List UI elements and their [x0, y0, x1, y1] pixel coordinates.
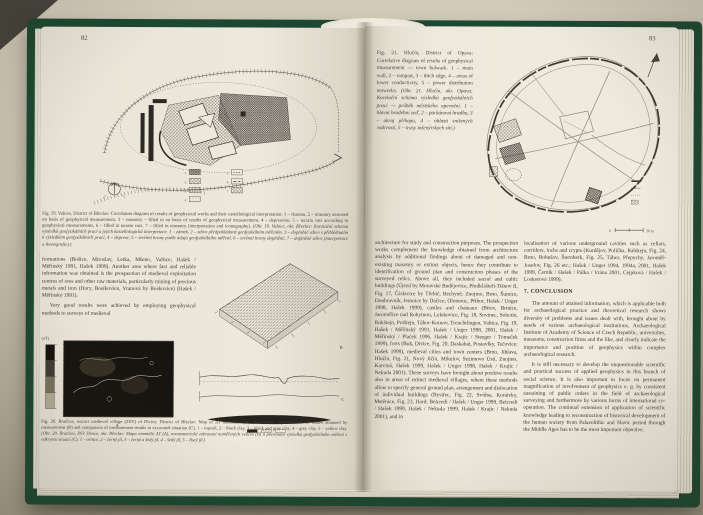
svg-text:7: 7	[227, 189, 229, 193]
scale-bar: 0 50 m	[609, 228, 654, 233]
fig20-caption: Fig. 20. Bratčice, extinct medieval vill…	[41, 419, 347, 444]
svg-text:5: 5	[227, 171, 229, 175]
fig19-site-plan: 1 2 3 4 5 6 7	[90, 53, 349, 210]
svg-text:50 m: 50 m	[646, 229, 654, 233]
fig20-3d-and-profiles: B C	[189, 251, 348, 436]
svg-text:0: 0	[609, 229, 611, 233]
book-photo: 82	[0, 0, 703, 515]
svg-text:2: 2	[185, 180, 187, 184]
svg-text:4: 4	[185, 198, 187, 202]
fig21-town-plan-map: 0 50 m	[459, 30, 675, 241]
svg-text:6: 6	[227, 180, 229, 184]
fig20-unit-label: (nT)	[42, 336, 50, 341]
column-left-text: architecture for study and construction …	[374, 240, 518, 421]
north-arrow-icon	[648, 53, 660, 77]
conclusion-paragraph-2: It is still necessary to develop the unq…	[523, 362, 665, 435]
fig20-caption-cz: (Obr. 20. Bratčice, ZSV Divice, okr. Bře…	[41, 430, 347, 442]
body-paragraph-1: formations (Bošice, Miroslav, Letka, Mše…	[42, 257, 196, 301]
fig19-caption: Fig. 19. Valtice, District of Břeclav: C…	[42, 212, 348, 250]
conclusion-heading: 7. CONCLUSION	[524, 289, 666, 297]
colorbar	[45, 345, 56, 409]
right-page-column-right: localisation of various underground cavi…	[523, 241, 666, 438]
fig20-caption-en: Fig. 20. Bratčice, extinct medieval vill…	[41, 419, 347, 431]
fig20-magnetic-map: (nT) A	[39, 333, 179, 430]
conclusion-paragraph-1: The amount of attained information, whic…	[524, 301, 666, 359]
body-paragraph-2: Very good results were achieved by emplo…	[42, 303, 196, 318]
left-page-body-column: formations (Bošice, Miroslav, Letka, Mše…	[42, 257, 196, 322]
open-book: 82	[25, 19, 702, 508]
left-page: 82	[39, 27, 365, 490]
fig21-caption: Fig. 21. Hlučín, District of Opava: Corr…	[377, 50, 473, 133]
fig20-panel-b-label: B	[340, 345, 343, 350]
right-page-column-left: architecture for study and construction …	[374, 240, 518, 424]
fig20-panel-c-label: C	[341, 397, 344, 402]
page-number-left: 82	[81, 35, 88, 42]
column-right-paragraph: localisation of various underground cavi…	[524, 241, 666, 285]
svg-text:1: 1	[185, 171, 187, 175]
right-page: 83 Fig. 21. Hlučín, District of Opava: C…	[363, 26, 679, 491]
